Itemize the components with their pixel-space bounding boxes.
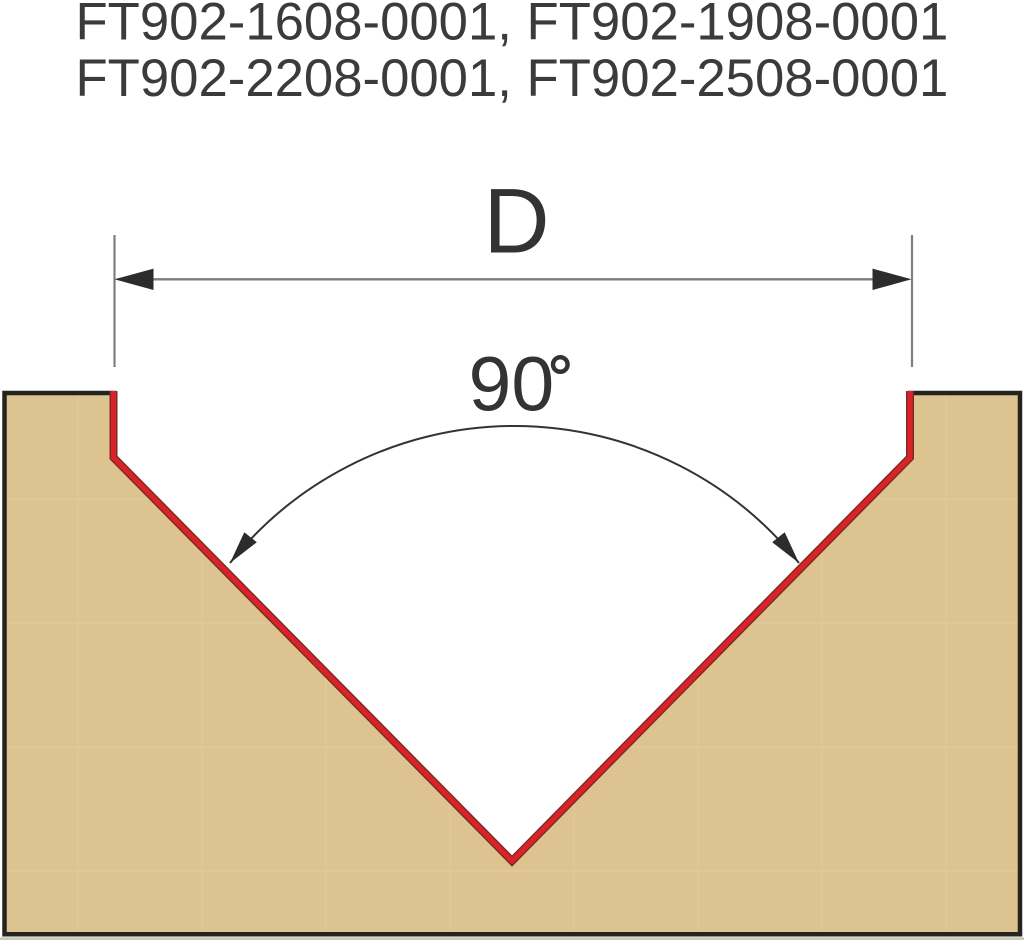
svg-text:FT902-2208-0001, FT902-2508-00: FT902-2208-0001, FT902-2508-0001: [76, 49, 949, 108]
svg-text:D: D: [483, 171, 549, 273]
svg-text:90: 90: [469, 342, 555, 428]
svg-text:FT902-1608-0001, FT902-1908-00: FT902-1608-0001, FT902-1908-0001: [76, 0, 949, 52]
